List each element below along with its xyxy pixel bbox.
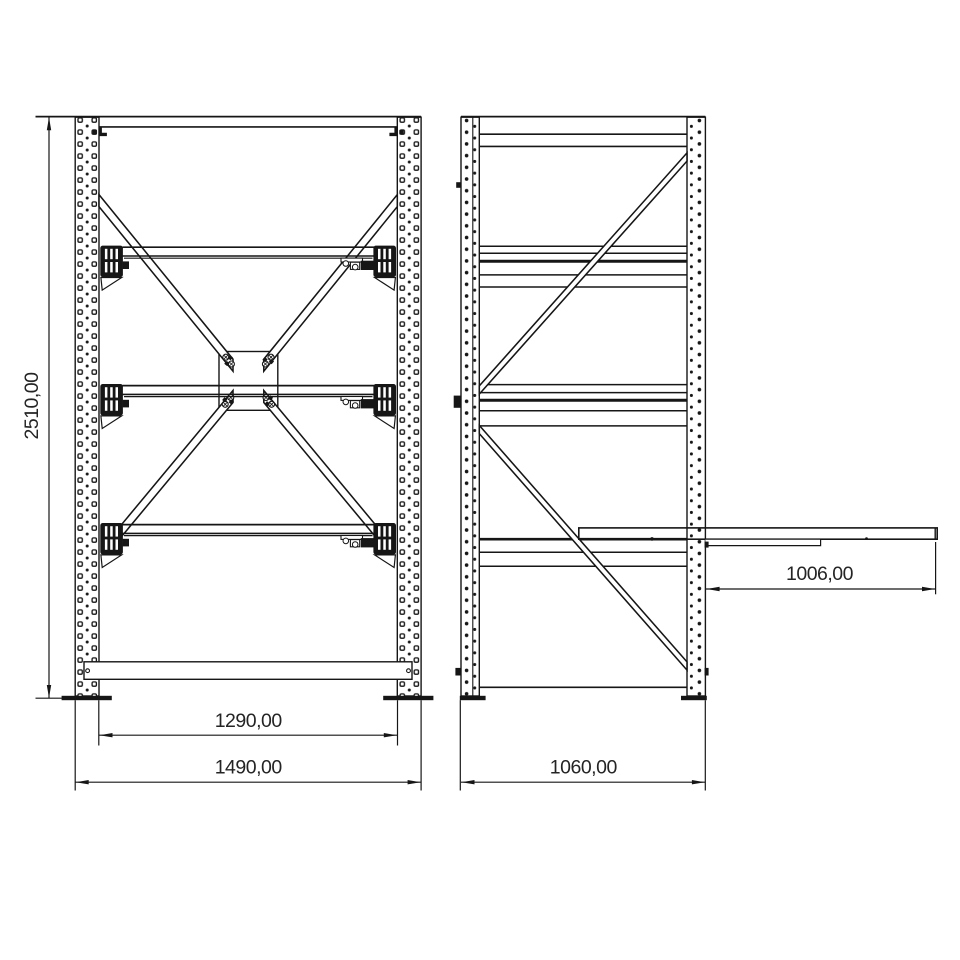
svg-text:2510,00: 2510,00 bbox=[21, 372, 43, 440]
svg-text:1060,00: 1060,00 bbox=[550, 757, 618, 779]
svg-text:1290,00: 1290,00 bbox=[215, 710, 283, 732]
svg-text:1490,00: 1490,00 bbox=[215, 757, 283, 779]
svg-text:1006,00: 1006,00 bbox=[786, 563, 854, 585]
